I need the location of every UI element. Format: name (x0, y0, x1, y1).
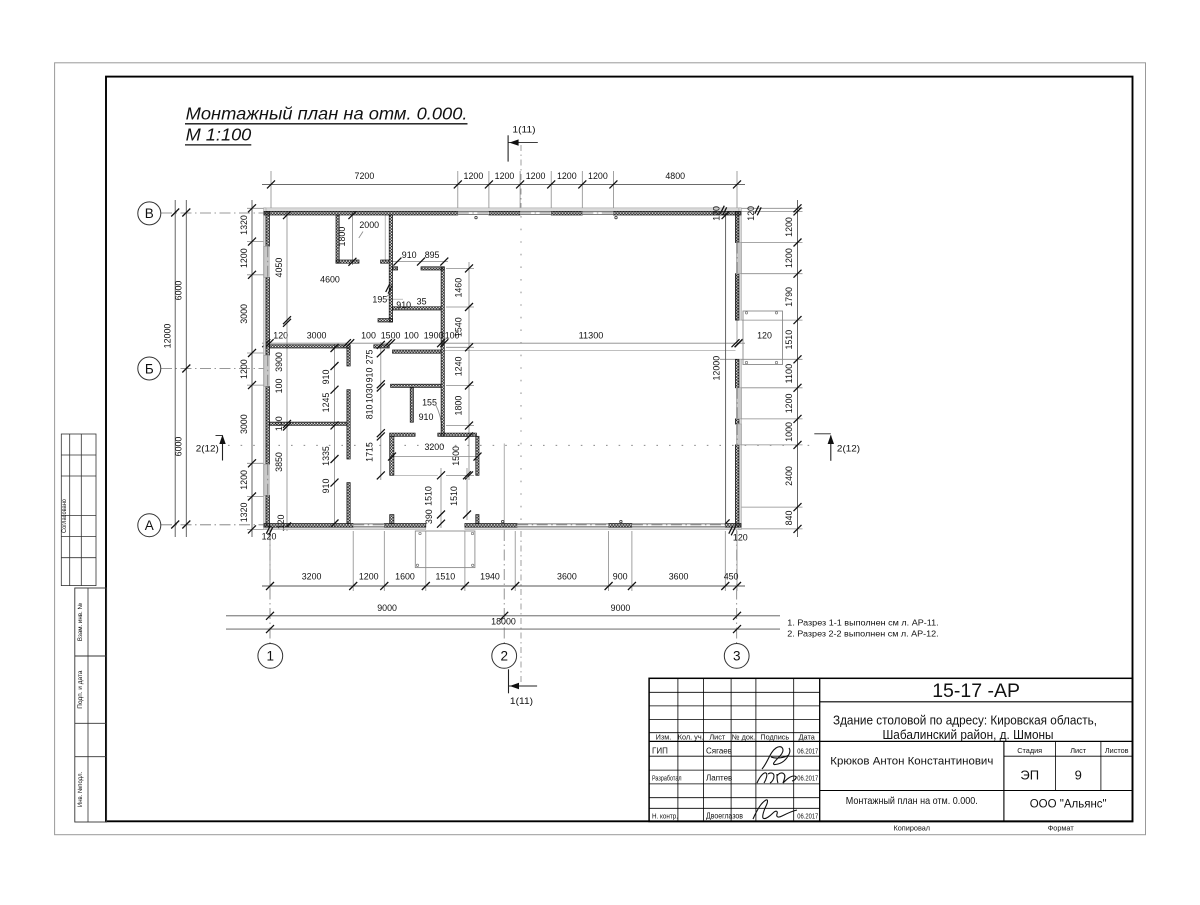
svg-text:6000: 6000 (174, 281, 185, 301)
svg-text:120: 120 (276, 515, 287, 530)
svg-text:06.2017: 06.2017 (797, 814, 818, 821)
svg-text:1335: 1335 (321, 446, 332, 466)
svg-text:3900: 3900 (274, 352, 285, 372)
svg-text:Крюков Антон Константинович: Крюков Антон Константинович (830, 756, 993, 768)
svg-text:1200: 1200 (239, 359, 250, 379)
svg-text:900: 900 (613, 572, 628, 583)
svg-text:7200: 7200 (355, 171, 375, 182)
svg-text:1320: 1320 (239, 503, 250, 523)
svg-text:1245: 1245 (321, 393, 332, 413)
svg-text:3850: 3850 (274, 452, 285, 472)
svg-text:3600: 3600 (557, 572, 577, 583)
svg-text:100: 100 (274, 379, 285, 394)
svg-text:1. Разрез 1-1 выполнен см л. А: 1. Разрез 1-1 выполнен см л. АР-11. (787, 617, 938, 627)
svg-text:3200: 3200 (302, 572, 322, 583)
svg-text:Н. контр.: Н. контр. (652, 812, 678, 821)
svg-text:390: 390 (424, 509, 435, 524)
svg-text:Лист: Лист (709, 733, 726, 742)
svg-text:3000: 3000 (239, 304, 250, 324)
svg-text:Стадия: Стадия (1017, 746, 1042, 755)
svg-text:910: 910 (402, 250, 417, 261)
svg-text:100: 100 (361, 330, 376, 341)
svg-text:1200: 1200 (784, 248, 795, 268)
svg-text:3000: 3000 (307, 330, 327, 341)
svg-text:1200: 1200 (784, 394, 795, 414)
svg-text:11300: 11300 (579, 330, 604, 341)
svg-text:840: 840 (784, 511, 795, 526)
svg-text:1790: 1790 (784, 287, 795, 307)
svg-text:Разработал: Разработал (652, 774, 682, 783)
svg-text:2000: 2000 (359, 220, 379, 231)
svg-text:ГИП: ГИП (652, 747, 668, 756)
svg-text:450: 450 (724, 572, 739, 583)
svg-text:1: 1 (267, 649, 275, 664)
svg-text:4600: 4600 (320, 275, 340, 286)
svg-text:Копировал: Копировал (894, 824, 931, 833)
svg-text:1600: 1600 (395, 572, 415, 583)
svg-text:1940: 1940 (480, 572, 500, 583)
svg-text:1200: 1200 (359, 572, 379, 583)
svg-text:№ док.: № док. (732, 733, 755, 742)
svg-text:910: 910 (321, 479, 332, 494)
svg-text:1900: 1900 (424, 330, 444, 341)
svg-text:2: 2 (500, 649, 508, 664)
svg-text:3200: 3200 (424, 442, 444, 453)
svg-text:ЭП: ЭП (1020, 768, 1039, 783)
svg-text:120: 120 (733, 533, 748, 544)
svg-text:1(11): 1(11) (512, 124, 535, 134)
svg-text:6000: 6000 (174, 437, 185, 457)
svg-text:Взам. инв. №: Взам. инв. № (77, 603, 84, 642)
svg-text:Двоеглазов: Двоеглазов (706, 812, 743, 821)
svg-text:910: 910 (321, 370, 332, 385)
svg-text:1500: 1500 (381, 330, 401, 341)
svg-text:Формат: Формат (1048, 824, 1075, 833)
svg-text:1030: 1030 (364, 383, 375, 403)
svg-text:Шабалинский район, д. Шмоны: Шабалинский район, д. Шмоны (883, 727, 1054, 742)
svg-text:2(12): 2(12) (196, 444, 219, 454)
svg-text:120: 120 (262, 532, 277, 543)
svg-text:Согласовано: Согласовано (62, 498, 68, 533)
svg-text:1510: 1510 (784, 330, 795, 350)
svg-text:1500: 1500 (451, 446, 462, 466)
svg-text:1510: 1510 (423, 486, 434, 506)
svg-text:895: 895 (425, 250, 440, 261)
svg-text:1460: 1460 (454, 278, 465, 298)
svg-text:А: А (145, 518, 154, 533)
svg-text:Монтажный план на отм. 0.000.: Монтажный план на отм. 0.000. (846, 796, 978, 807)
svg-text:2(12): 2(12) (837, 444, 860, 454)
svg-text:Изм.: Изм. (656, 733, 672, 742)
svg-text:2400: 2400 (784, 466, 795, 486)
svg-text:Подп. и дата: Подп. и дата (77, 670, 84, 709)
svg-text:2. Разрез 2-2 выполнен см л. А: 2. Разрез 2-2 выполнен см л. АР-12. (787, 629, 938, 639)
svg-text:9: 9 (1075, 768, 1082, 783)
svg-text:4800: 4800 (665, 171, 685, 182)
svg-text:1715: 1715 (364, 442, 375, 462)
svg-text:В: В (145, 206, 154, 221)
svg-text:910: 910 (364, 368, 375, 383)
svg-text:1800: 1800 (454, 396, 465, 416)
svg-text:Монтажный план на отм. 0.000.: Монтажный план на отм. 0.000. (186, 103, 468, 123)
svg-text:9000: 9000 (377, 603, 397, 614)
svg-text:1100: 1100 (784, 364, 795, 384)
svg-text:Подпись: Подпись (760, 733, 789, 742)
svg-text:910: 910 (419, 412, 434, 423)
svg-text:195: 195 (372, 295, 387, 306)
svg-text:18000: 18000 (491, 617, 516, 628)
svg-text:1200: 1200 (464, 171, 484, 182)
svg-text:Сягаев: Сягаев (706, 747, 732, 756)
svg-text:1200: 1200 (495, 171, 515, 182)
svg-text:1200: 1200 (784, 217, 795, 237)
svg-text:1200: 1200 (526, 171, 546, 182)
svg-text:15-17 -АР: 15-17 -АР (932, 680, 1020, 702)
svg-text:Б: Б (145, 361, 154, 376)
svg-text:1(11): 1(11) (510, 696, 533, 706)
svg-text:ООО "Альянс": ООО "Альянс" (1030, 799, 1107, 811)
svg-text:155: 155 (422, 398, 437, 409)
svg-text:М 1:100: М 1:100 (186, 125, 252, 145)
svg-text:06.2017: 06.2017 (797, 776, 818, 783)
svg-text:1320: 1320 (239, 215, 250, 235)
svg-text:Лаптев: Лаптев (706, 774, 732, 783)
svg-text:100: 100 (404, 330, 419, 341)
svg-text:1510: 1510 (435, 572, 455, 583)
svg-text:12000: 12000 (711, 356, 722, 381)
svg-text:1200: 1200 (239, 470, 250, 490)
svg-text:1000: 1000 (784, 422, 795, 442)
svg-text:1540: 1540 (454, 317, 465, 337)
svg-text:4050: 4050 (274, 258, 285, 278)
svg-text:1200: 1200 (588, 171, 608, 182)
svg-text:Лист: Лист (1070, 746, 1087, 755)
svg-text:275: 275 (364, 350, 375, 365)
svg-text:06.2017: 06.2017 (797, 749, 818, 756)
svg-text:12000: 12000 (163, 324, 174, 349)
svg-text:810: 810 (364, 405, 375, 420)
svg-text:1240: 1240 (454, 357, 465, 377)
svg-text:120: 120 (273, 330, 288, 341)
svg-text:3000: 3000 (239, 414, 250, 434)
svg-text:1200: 1200 (239, 248, 250, 268)
svg-text:Листов: Листов (1105, 746, 1129, 755)
svg-text:1510: 1510 (449, 486, 460, 506)
svg-text:1200: 1200 (557, 171, 577, 182)
svg-text:Кол. уч.: Кол. уч. (678, 733, 704, 742)
svg-text:120: 120 (757, 330, 772, 341)
svg-text:Инв. №подл.: Инв. №подл. (77, 772, 84, 807)
svg-text:35: 35 (417, 297, 427, 308)
svg-text:Здание столовой по адресу: Кир: Здание столовой по адресу: Кировская обл… (833, 713, 1097, 728)
svg-text:Дата: Дата (799, 733, 816, 742)
svg-text:3600: 3600 (669, 572, 689, 583)
svg-text:9000: 9000 (611, 603, 631, 614)
svg-text:3: 3 (733, 649, 741, 664)
